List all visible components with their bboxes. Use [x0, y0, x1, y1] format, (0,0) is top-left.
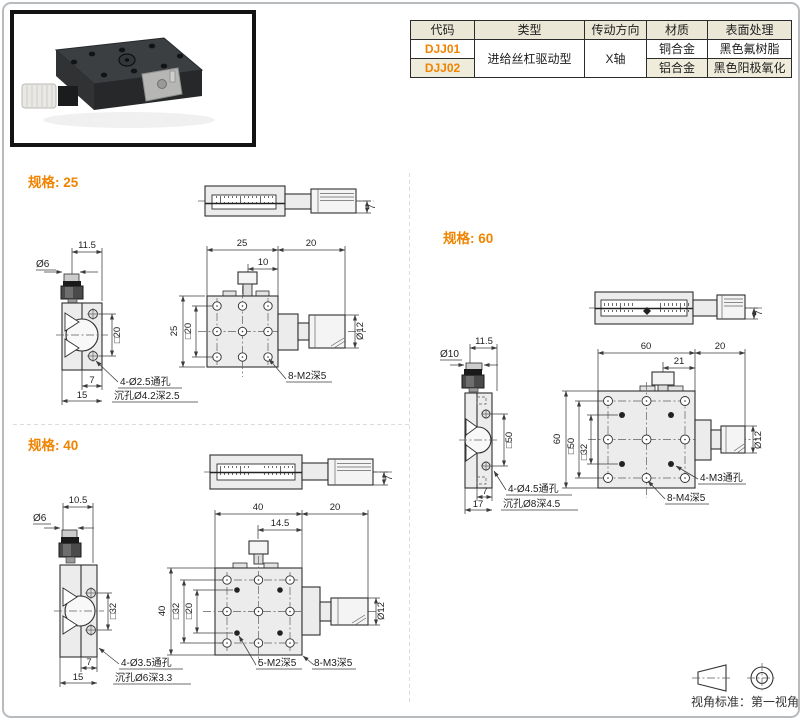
spec25-side-knob-dia: Ø6: [36, 259, 50, 270]
spec40-plan-h-dim: 40: [157, 606, 168, 617]
spec40-side-view: 10.5 Ø6: [33, 495, 191, 687]
product-photo: [14, 14, 252, 143]
surface-finish: 黑色阳极氧化: [708, 59, 792, 78]
spec40-side-callout1: 4-Ø3.5通孔: [121, 657, 172, 669]
spec25-side-callout1: 4-Ø2.5通孔: [120, 376, 171, 388]
section-title-spec25: 规格: 25: [28, 171, 78, 191]
knob-mount-block: [58, 86, 78, 106]
spec60-side-d2-dim: 17: [473, 499, 484, 510]
spec25-plan-sq-dim: □20: [183, 323, 194, 339]
spec60-side-sq-dim: □50: [504, 432, 515, 448]
spec60-plan-callout2: 8-M4深5: [667, 492, 706, 504]
spec25-side-sq-dim: □20: [112, 327, 123, 343]
spec25-plan-inner-dim: 10: [258, 257, 269, 268]
col-header-finish: 表面处理: [708, 21, 792, 40]
section-title-spec40: 规格: 40: [28, 434, 78, 454]
spec40-plan-view: 40 20 14.5: [157, 502, 387, 669]
spec40-side-callout2: 沉孔Ø6深3.3: [115, 671, 173, 684]
spec60-plan-callout1: 4-M3通孔: [700, 472, 743, 484]
spec25-plan-view: 25 20 10: [169, 238, 366, 382]
spec25-plan-knobdia-dim: Ø12: [355, 322, 366, 340]
spec60-plan-inner-dim: 21: [674, 356, 685, 367]
spec40-plan-inner-dim: 14.5: [271, 518, 290, 529]
part-code: DJJ01: [411, 40, 475, 59]
spec25-side-view: 11.5 Ø6: [36, 240, 198, 405]
spec60-side-w1-dim: 11.5: [475, 336, 493, 347]
spec40-side-w1-dim: 10.5: [69, 495, 88, 506]
spec60-plan-knobdia-dim: Ø12: [753, 431, 764, 449]
spec-table: 代码 类型 传动方向 材质 表面处理 DJJ01 进给丝杠驱动型 X轴 铜合金 …: [410, 20, 792, 78]
material: 铝合金: [647, 59, 708, 78]
col-header-type: 类型: [475, 21, 585, 40]
surface-finish: 黑色氟树脂: [708, 40, 792, 59]
spec40-drawing: 7 10.5 Ø6: [33, 455, 395, 687]
spec25-side-d1-dim: 7: [89, 375, 94, 386]
spec25-plan-w-dim: 25: [237, 238, 248, 249]
spec25-plan-h-dim: 25: [169, 326, 180, 337]
col-header-direction: 传动方向: [585, 21, 647, 40]
spec40-plan-w-dim: 40: [253, 502, 264, 513]
spec60-side-callout2: 沉孔Ø8深4.5: [503, 497, 561, 510]
spec40-plan-callout1: 5-M2深5: [258, 657, 297, 669]
section-title-spec60: 规格: 60: [443, 227, 493, 247]
spec60-plan-view: 60 20 21: [552, 341, 764, 504]
spec25-drawing: 7 11.5 Ø6: [36, 186, 378, 405]
spec40-top-height-dim: 7: [384, 475, 395, 480]
projection-symbol: 视角标准：第一视角: [691, 663, 799, 709]
spec25-plan-knoblen-dim: 20: [306, 238, 317, 249]
spec25-side-callout2: 沉孔Ø4.2深2.5: [114, 389, 180, 402]
spec40-plan-knobdia-dim: Ø12: [376, 602, 387, 620]
part-code: DJJ02: [411, 59, 475, 78]
spec25-top-height-dim: 7: [367, 204, 378, 209]
product-photo-frame: [10, 10, 256, 147]
spec60-drawing: 7 11.5 Ø10: [440, 292, 765, 514]
spec25-side-w1-dim: 11.5: [78, 240, 96, 251]
spec60-side-d1-dim: 7: [482, 486, 487, 497]
spec60-plan-h-dim: 60: [552, 434, 563, 445]
part-type: 进给丝杠驱动型: [475, 40, 585, 78]
spec40-side-sq-dim: □32: [108, 603, 119, 619]
spec40-plan-knoblen-dim: 20: [330, 502, 341, 513]
spec60-side-callout1: 4-Ø4.5通孔: [508, 483, 559, 495]
catalog-page: 7 11.5 Ø6: [0, 0, 802, 720]
col-header-code: 代码: [411, 21, 475, 40]
spec60-plan-knoblen-dim: 20: [715, 341, 726, 352]
col-header-material: 材质: [647, 21, 708, 40]
table-header-row: 代码 类型 传动方向 材质 表面处理: [411, 21, 792, 40]
spec25-plan-callout1: 8-M2深5: [288, 370, 327, 382]
adjustment-knob: [22, 84, 56, 108]
spec40-plan-sq2-dim: □20: [184, 603, 195, 619]
spec40-side-d1-dim: 7: [86, 657, 91, 668]
spec60-top-height-dim: 7: [754, 310, 765, 315]
spec25-side-d2-dim: 15: [77, 390, 88, 401]
spec60-plan-sq1-dim: □50: [566, 438, 577, 454]
drive-direction: X轴: [585, 40, 647, 78]
table-row: DJJ01 进给丝杠驱动型 X轴 铜合金 黑色氟树脂: [411, 40, 792, 59]
spec40-top-view: 7: [204, 455, 395, 489]
spec60-side-knob-dia: Ø10: [440, 349, 459, 360]
spec40-side-knob-dia: Ø6: [33, 513, 47, 524]
spec60-plan-w-dim: 60: [641, 341, 652, 352]
spec40-plan-sq1-dim: □32: [171, 603, 182, 619]
spec60-side-view: 11.5 Ø10: [440, 336, 578, 514]
spec40-side-d2-dim: 15: [73, 672, 84, 683]
material: 铜合金: [647, 40, 708, 59]
spec60-plan-sq2-dim: □32: [579, 444, 590, 460]
view-standard-label: 视角标准：第一视角: [691, 694, 799, 709]
spec25-top-view: 7: [198, 186, 378, 216]
spec40-plan-callout2: 8-M3深5: [314, 657, 353, 669]
spec60-top-view: 7: [589, 292, 765, 324]
